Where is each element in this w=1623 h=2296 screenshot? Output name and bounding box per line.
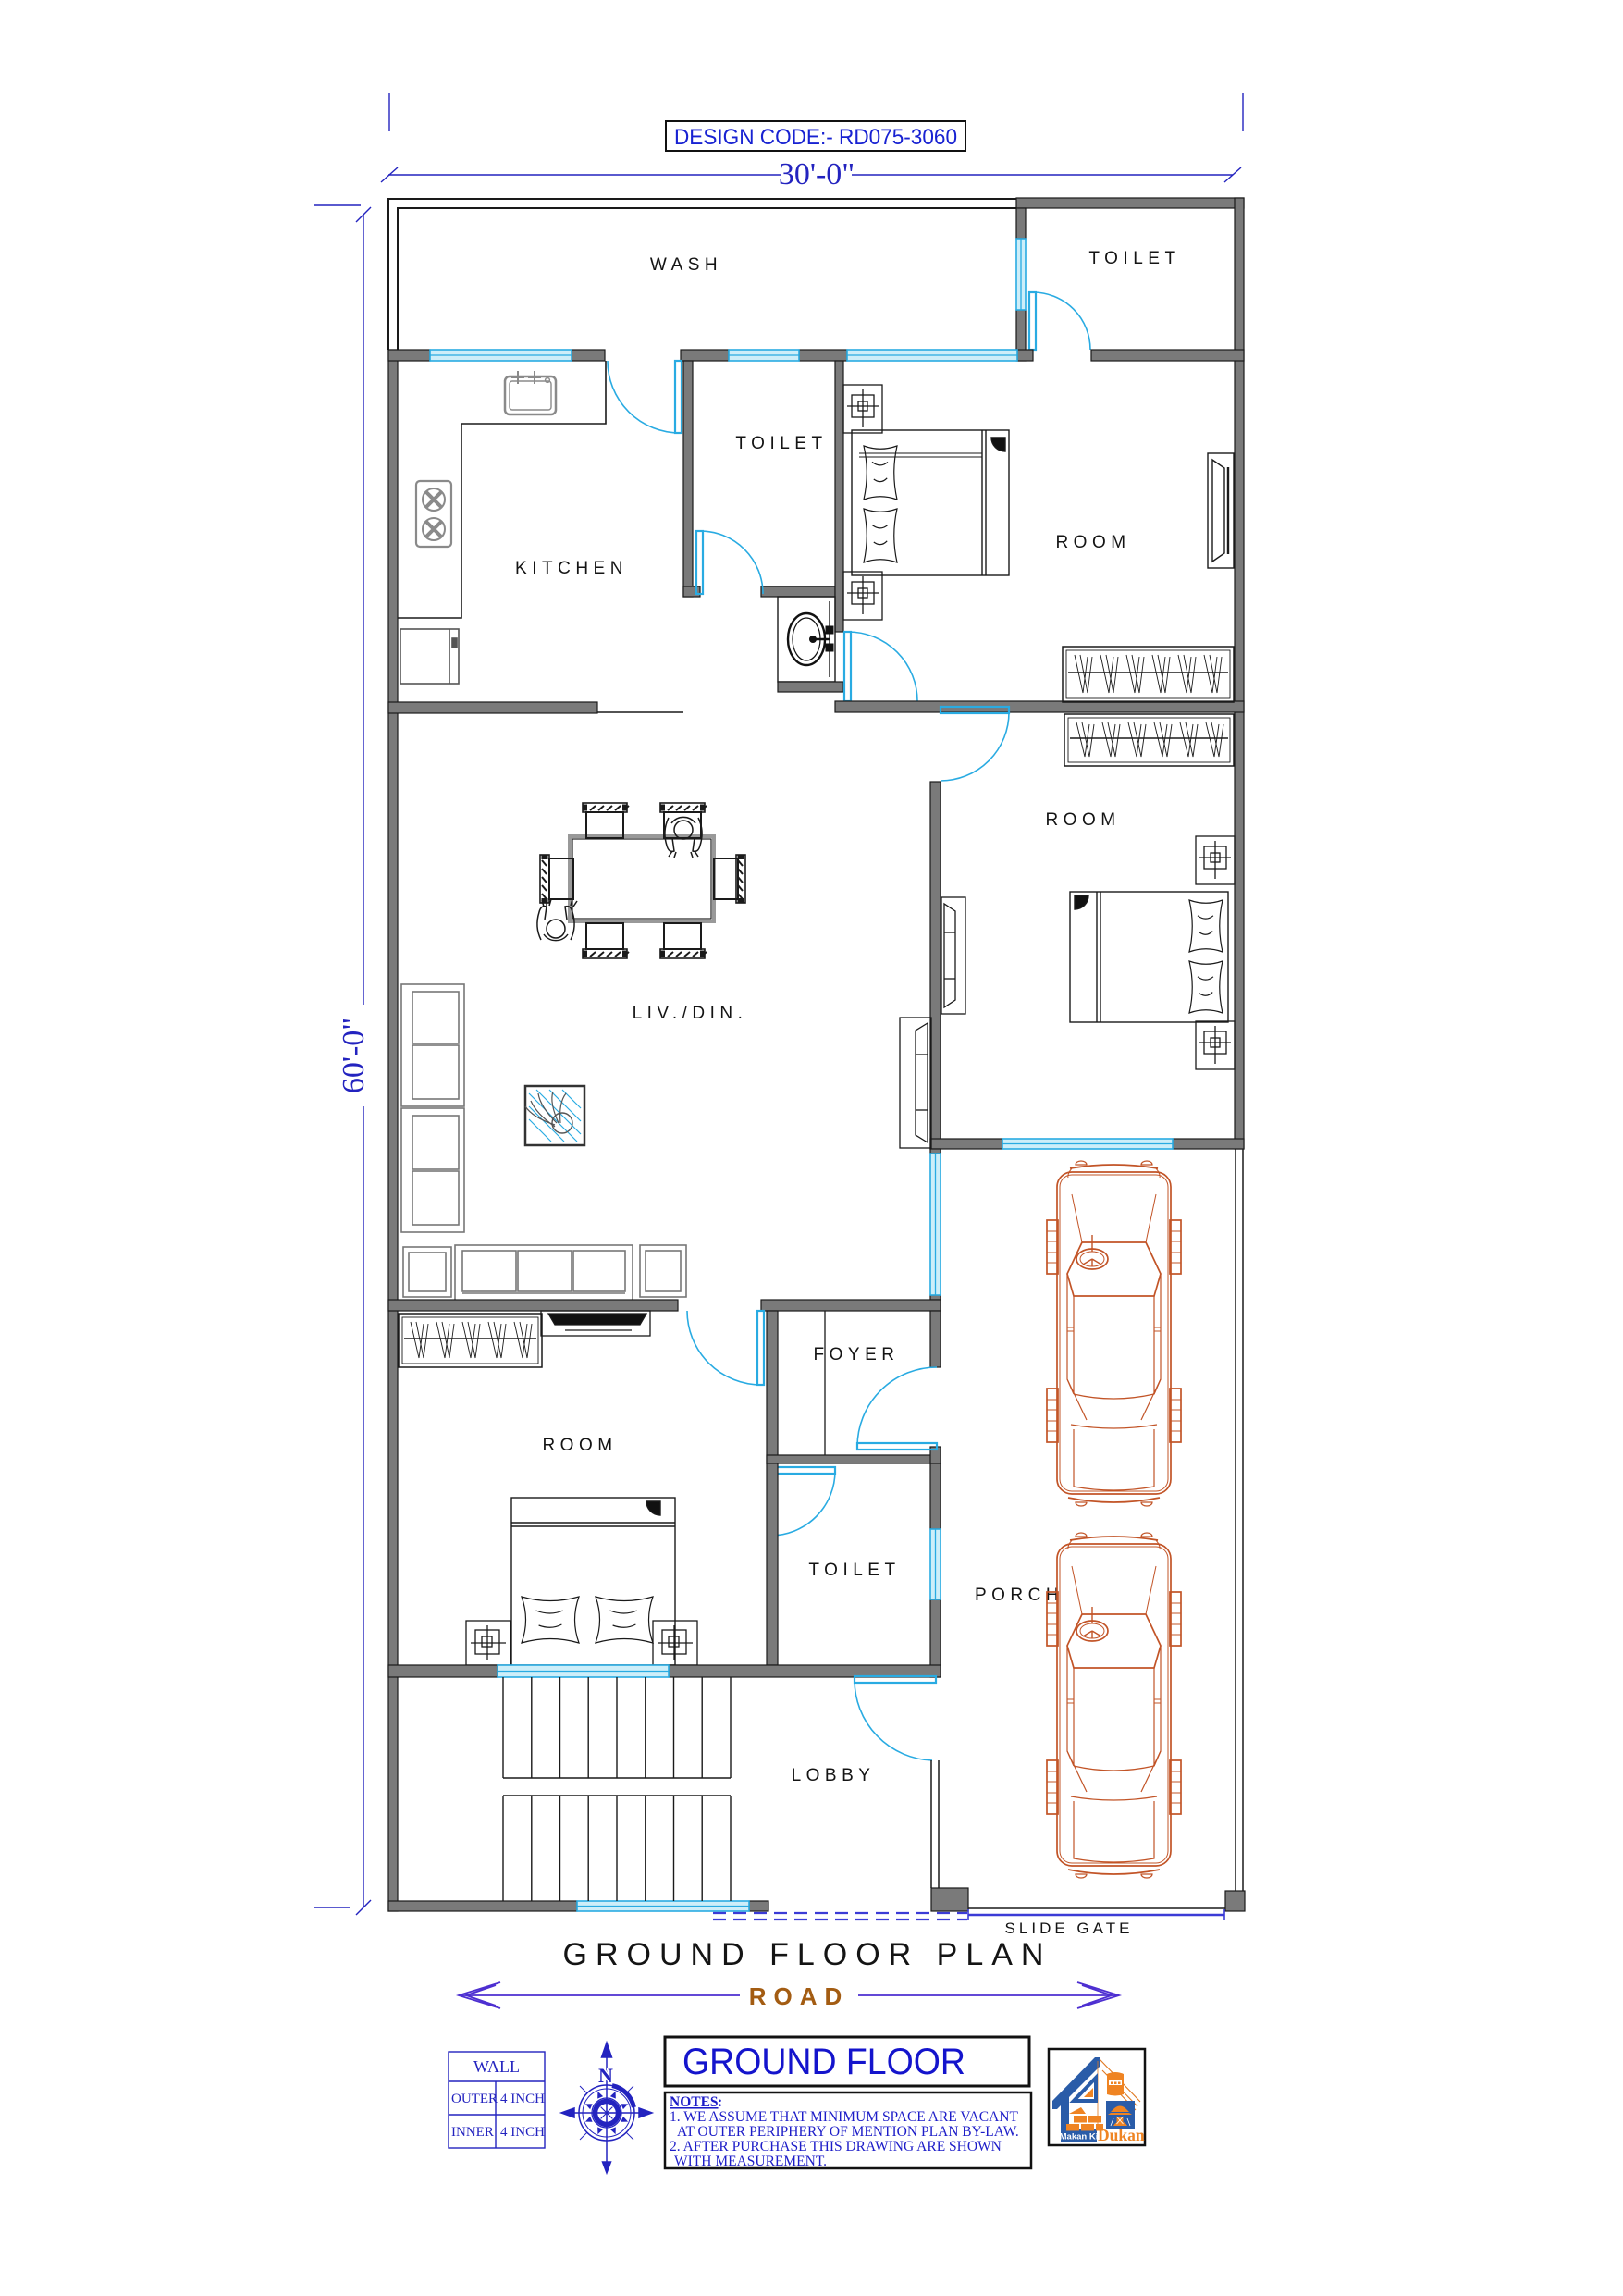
svg-text:NOTES: NOTES bbox=[670, 2094, 719, 2110]
svg-text:GROUND FLOOR PLAN: GROUND FLOOR PLAN bbox=[563, 1937, 1052, 1972]
svg-text:2. AFTER PURCHASE THIS DRAWING: 2. AFTER PURCHASE THIS DRAWING ARE SHOWN bbox=[670, 2139, 1002, 2154]
svg-text:Makan Ki: Makan Ki bbox=[1060, 2132, 1099, 2142]
svg-text:PORCH: PORCH bbox=[975, 1586, 1064, 1605]
svg-text:ROOM: ROOM bbox=[1045, 810, 1120, 830]
svg-text:ROOM: ROOM bbox=[542, 1436, 617, 1455]
svg-text::: : bbox=[718, 2094, 722, 2110]
svg-text:N: N bbox=[598, 2064, 613, 2087]
svg-text:KITCHEN: KITCHEN bbox=[515, 559, 628, 578]
svg-text:LOBBY: LOBBY bbox=[792, 1766, 876, 1785]
svg-text:60'-0": 60'-0" bbox=[337, 1018, 371, 1093]
svg-text:WALL: WALL bbox=[473, 2057, 520, 2076]
svg-text:AT OUTER PERIPHERY OF MENTION: AT OUTER PERIPHERY OF MENTION PLAN BY-LA… bbox=[677, 2124, 1019, 2140]
svg-text:WITH MEASUREMENT.: WITH MEASUREMENT. bbox=[674, 2154, 827, 2169]
svg-text:WASH: WASH bbox=[650, 255, 722, 275]
svg-text:TOILET: TOILET bbox=[808, 1561, 900, 1580]
svg-text:TOILET: TOILET bbox=[1088, 249, 1180, 268]
svg-text:ROAD: ROAD bbox=[749, 1982, 850, 2010]
svg-text:INNER: INNER bbox=[451, 2125, 494, 2140]
svg-text:GROUND FLOOR: GROUND FLOOR bbox=[682, 2042, 965, 2082]
svg-text:ROOM: ROOM bbox=[1055, 533, 1130, 552]
svg-text:1. WE ASSUME THAT MINIMUM SPAC: 1. WE ASSUME THAT MINIMUM SPACE ARE VACA… bbox=[670, 2109, 1018, 2125]
svg-text:4 INCH: 4 INCH bbox=[500, 2092, 545, 2106]
svg-text:LIV./DIN.: LIV./DIN. bbox=[633, 1004, 748, 1023]
svg-text:FOYER: FOYER bbox=[814, 1345, 900, 1364]
svg-text:4 INCH: 4 INCH bbox=[500, 2125, 545, 2140]
svg-text:TOILET: TOILET bbox=[735, 434, 827, 453]
svg-text:DESIGN CODE:- RD075-3060: DESIGN CODE:- RD075-3060 bbox=[674, 125, 957, 150]
svg-text:OUTER: OUTER bbox=[451, 2092, 498, 2106]
svg-text:SLIDE GATE: SLIDE GATE bbox=[1005, 1920, 1134, 1937]
svg-text:30'-0": 30'-0" bbox=[779, 157, 855, 191]
svg-text:Dukan: Dukan bbox=[1098, 2126, 1145, 2144]
